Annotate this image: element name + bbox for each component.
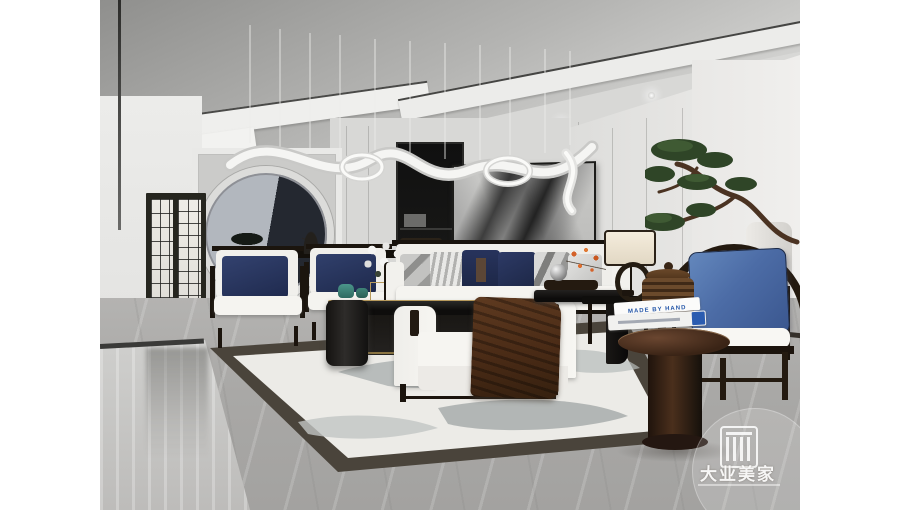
- watermark-logo-bars: [726, 437, 752, 461]
- living-room-photo: MADE BY HAND: [100, 0, 800, 510]
- side-table-leg: [588, 304, 592, 344]
- armchair-seat-cushion: [214, 296, 302, 315]
- bench-leg: [400, 384, 406, 402]
- armchair-leg: [312, 322, 316, 340]
- ceiling-spotlight-icon: [648, 92, 655, 99]
- chair-leg: [782, 352, 788, 400]
- chandelier-wires: [250, 25, 570, 163]
- orange-flower-sprigs: [566, 246, 606, 284]
- wall-corner-line: [118, 0, 121, 230]
- bonsai-trunk: [659, 164, 797, 242]
- book-bottom-blue-edge: [692, 311, 706, 325]
- book-stack: MADE BY HAND: [606, 294, 710, 334]
- rendered-photo-canvas: MADE BY HAND: [0, 0, 900, 510]
- armchair-leg: [294, 326, 298, 346]
- brand-watermark: 大业美家: [690, 404, 800, 510]
- sofa-pillow-navy-band: [462, 250, 500, 290]
- bench-arm-handle-slot: [410, 310, 419, 336]
- navy-pillow: [222, 256, 288, 298]
- ribbon-chandelier: [210, 25, 600, 220]
- watermark-logo-topbar: [726, 432, 752, 435]
- black-drum-stool: [326, 300, 368, 366]
- sofa-pillow-gray-leaf: [400, 254, 434, 290]
- book-bottom-spine-text-blur: [618, 318, 680, 324]
- teal-jar-small: [356, 288, 368, 298]
- chandelier-ribbons: [230, 147, 592, 211]
- pillow-brown-band: [476, 258, 486, 282]
- watermark-brand-characters: 大业美家: [700, 465, 776, 484]
- silver-sphere-vase: [550, 264, 567, 281]
- niche-shelf: [400, 228, 460, 230]
- sofa-pillow-stripe: [430, 252, 466, 290]
- watermark-tagline-line: [698, 484, 780, 486]
- armchair-left: [210, 244, 310, 352]
- watermark-brand-text: 大业美家: [690, 460, 786, 485]
- armchair-leg: [218, 328, 222, 348]
- teal-jar-small: [338, 284, 354, 298]
